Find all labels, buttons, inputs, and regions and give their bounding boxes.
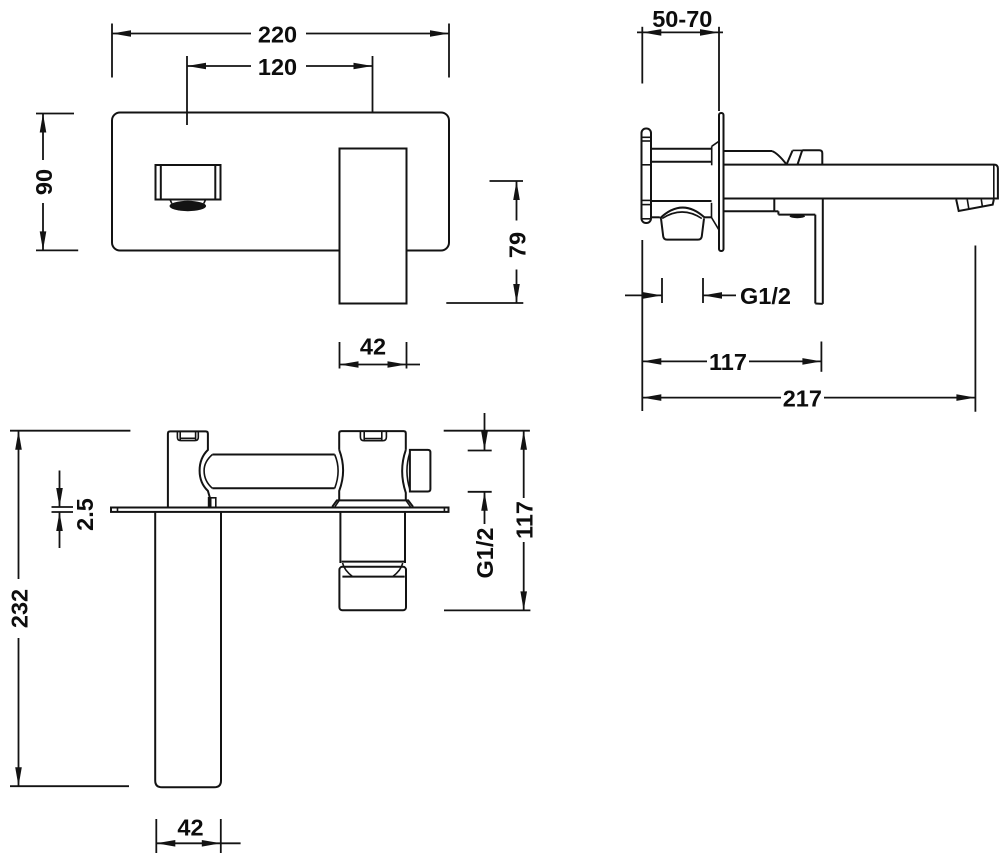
svg-text:220: 220 bbox=[258, 22, 297, 48]
svg-text:79: 79 bbox=[505, 232, 531, 258]
svg-text:120: 120 bbox=[258, 54, 297, 80]
svg-text:217: 217 bbox=[783, 385, 822, 411]
svg-text:2.5: 2.5 bbox=[72, 498, 98, 531]
svg-text:G1/2: G1/2 bbox=[472, 528, 498, 579]
svg-text:42: 42 bbox=[360, 334, 386, 360]
svg-text:G1/2: G1/2 bbox=[740, 283, 791, 309]
svg-text:117: 117 bbox=[709, 349, 747, 375]
svg-text:50-70: 50-70 bbox=[652, 6, 712, 32]
svg-text:117: 117 bbox=[511, 501, 537, 539]
svg-text:42: 42 bbox=[177, 815, 203, 841]
svg-text:90: 90 bbox=[31, 169, 57, 195]
svg-text:232: 232 bbox=[7, 589, 33, 628]
